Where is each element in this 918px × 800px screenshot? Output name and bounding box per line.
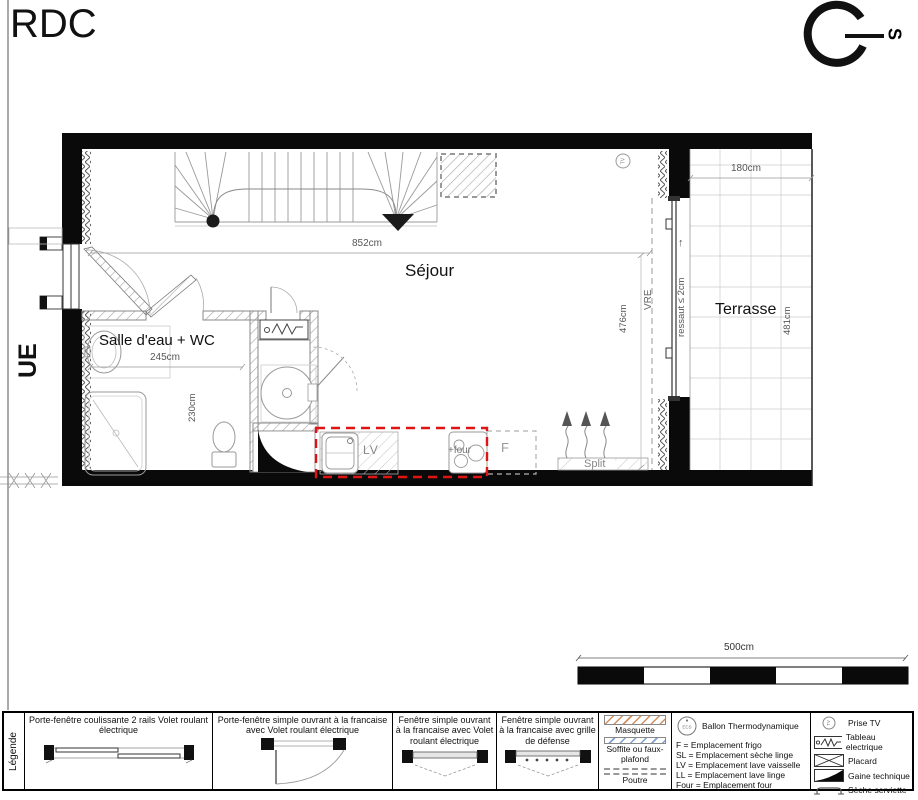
- ballon-label: Ballon Thermodynamique: [702, 721, 799, 731]
- symbol-label: Gaine technique: [848, 771, 910, 781]
- kitchen-counter: [320, 432, 398, 474]
- dim-476: 476cm: [619, 299, 629, 333]
- stair-direction: [207, 214, 415, 231]
- split-label: Split: [584, 459, 605, 470]
- equip-line: LL = Emplacement lave linge: [676, 770, 785, 780]
- floor-plan-page: S: [0, 0, 918, 800]
- equip-line: SL = Emplacement sèche linge: [676, 750, 793, 760]
- technical-duct-icon: [814, 769, 844, 782]
- tv-socket-icon: TV: [616, 154, 630, 168]
- symbol-label: Placard: [848, 756, 877, 766]
- legend-equipment-section: ECS Ballon Thermodynamique F = Emplaceme…: [672, 713, 811, 789]
- room-label-terrasse: Terrasse: [715, 302, 776, 318]
- electrical-panel-icon: [814, 736, 842, 749]
- dim-852: 852cm: [352, 239, 382, 249]
- scale-bar-label: 500cm: [724, 643, 754, 653]
- toilet: [212, 422, 236, 467]
- dim-180: 180cm: [731, 164, 761, 174]
- legend-item-window-shutter: Fenêtre simple ouvrant à la francaise av…: [393, 713, 497, 789]
- window-grille-icon: [505, 748, 591, 778]
- legend-item-label: Porte-fenêtre coulissante 2 rails Volet …: [27, 715, 210, 736]
- water-heater-icon: ECS: [676, 715, 698, 737]
- legend-title: Légende: [9, 732, 19, 771]
- legend-title-cell: Légende: [4, 713, 25, 789]
- towel-dryer-icon: [814, 784, 844, 796]
- legend-item-label: Fenêtre simple ouvrant à la francaise av…: [499, 715, 596, 746]
- north-compass-icon: S: [808, 5, 905, 63]
- water-heater: [261, 365, 317, 422]
- legend-item-french-door: Porte-fenêtre simple ouvrant à la franca…: [213, 713, 393, 789]
- equip-line: LV = Emplacement lave vaisselle: [676, 760, 800, 770]
- dim-481: 481cm: [783, 297, 793, 335]
- tv-tag: TV: [826, 720, 831, 726]
- oven-label: +four: [448, 446, 471, 456]
- bathroom-door: [146, 275, 203, 317]
- legend-symbols-section: TV Prise TV Tableau electrique Placard: [811, 713, 912, 789]
- room-label-sejour: Séjour: [405, 262, 454, 279]
- ballon-tag: ECS: [682, 725, 691, 730]
- ressaut-arrow: ↑: [678, 238, 684, 249]
- wall-insulation: [82, 151, 667, 470]
- room-label-salle-eau: Salle d'eau + WC: [99, 333, 215, 348]
- symbol-label: Prise TV: [848, 718, 880, 728]
- masquette-hatch-icon: [604, 715, 666, 725]
- poutre-dash-icon: [604, 768, 666, 775]
- masquette-label: Masquette: [615, 726, 655, 736]
- legend-item-label: Porte-fenêtre simple ouvrant à la franca…: [215, 715, 390, 736]
- technical-duct: [253, 429, 315, 472]
- legend-item-window-grille: Fenêtre simple ouvrant à la francaise av…: [497, 713, 599, 789]
- shutter-label-vre: VRE: [644, 278, 654, 310]
- french-door-icon: [243, 738, 363, 787]
- symbol-label: Sèche serviette: [848, 785, 907, 795]
- equip-line: F = Emplacement frigo: [676, 740, 762, 750]
- legend-item-label: Fenêtre simple ouvrant à la francaise av…: [395, 715, 494, 746]
- poutre-label: Poutre: [622, 776, 647, 786]
- compass-south-label: S: [884, 28, 904, 40]
- floor-plan-drawing: S: [0, 0, 918, 710]
- dim-230: 230cm: [188, 376, 198, 422]
- legend: Légende Porte-fenêtre coulissante 2 rail…: [2, 711, 914, 791]
- fridge-zone: [487, 431, 536, 474]
- closet-icon: [814, 754, 844, 767]
- window-shutter-icon: [402, 748, 488, 778]
- symbol-label: Tableau electrique: [846, 732, 910, 752]
- equip-line: Four = Emplacement four: [676, 780, 772, 790]
- shower: [85, 392, 146, 475]
- dimension-lines: [88, 175, 814, 470]
- electrical-panel: [260, 320, 308, 339]
- entry-door-window: [40, 237, 152, 315]
- dim-ressaut: ressaut ≤ 2cm: [677, 252, 687, 337]
- fridge-label: F: [501, 441, 509, 454]
- tv-socket-icon: TV: [814, 716, 844, 730]
- legend-ceiling-section: Masquette Soffite ou faux-plafond Poutre: [599, 713, 672, 789]
- scale-bar: [576, 655, 908, 684]
- soffit-zone: [441, 154, 496, 197]
- legend-item-sliding-door: Porte-fenêtre coulissante 2 rails Volet …: [25, 713, 213, 789]
- page-title: RDC: [10, 4, 97, 44]
- tv-socket-label: TV: [620, 157, 626, 164]
- soffite-label: Soffite ou faux-plafond: [601, 745, 669, 765]
- sliding-door-icon: [44, 740, 194, 766]
- street-label-ue: UE: [16, 328, 41, 378]
- dim-245: 245cm: [150, 353, 180, 363]
- soffite-hatch-icon: [604, 737, 666, 745]
- dishwasher-label: LV: [363, 444, 379, 456]
